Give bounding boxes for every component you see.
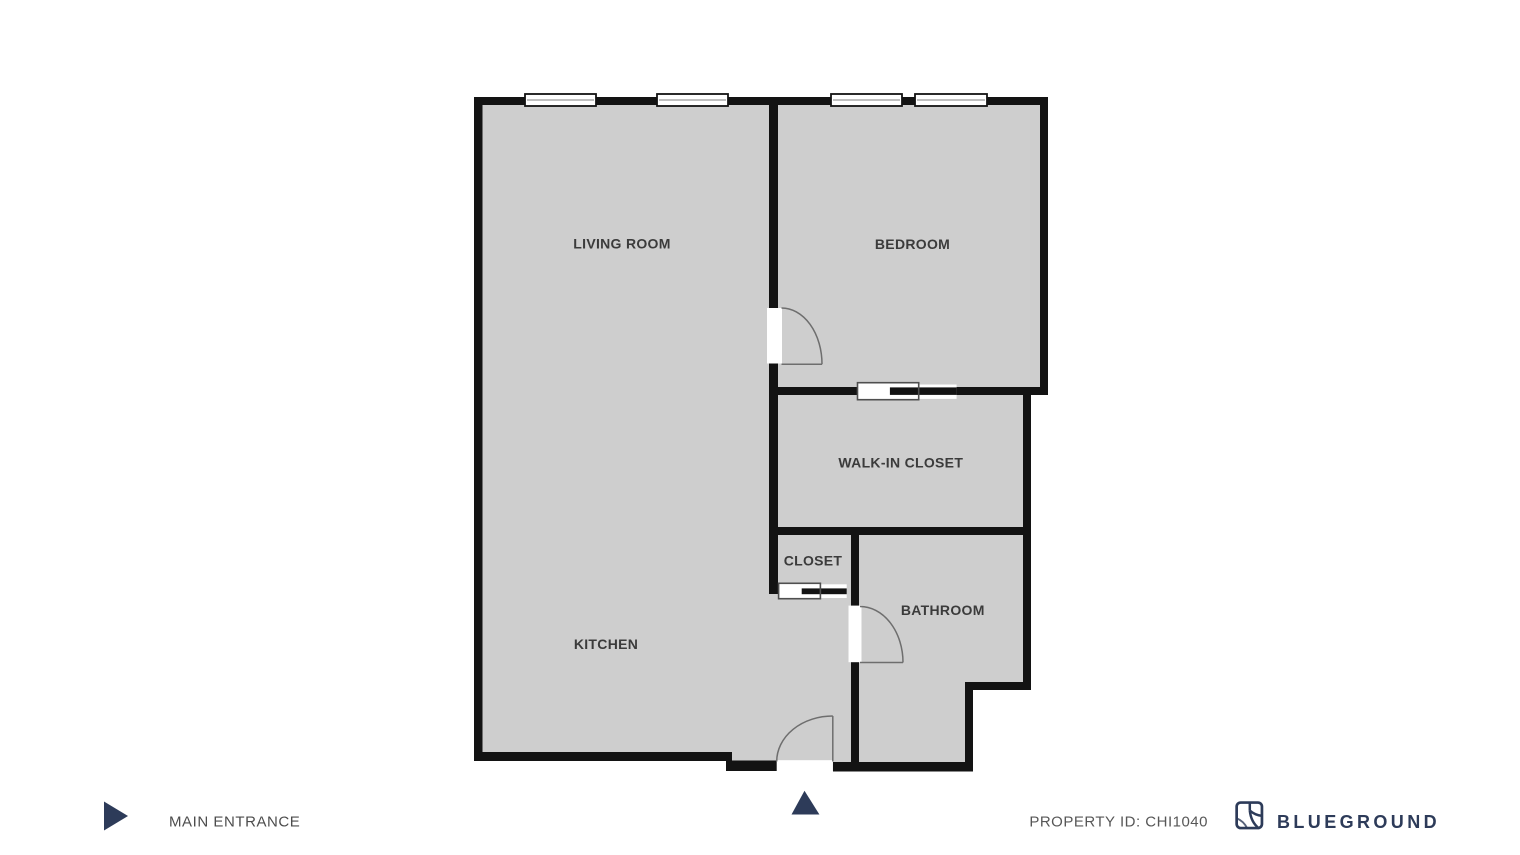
- svg-text:BLUEGROUND: BLUEGROUND: [1277, 812, 1440, 832]
- svg-text:PROPERTY ID: CHI1040: PROPERTY ID: CHI1040: [1029, 814, 1208, 831]
- svg-text:KITCHEN: KITCHEN: [574, 636, 638, 652]
- svg-text:MAIN ENTRANCE: MAIN ENTRANCE: [169, 814, 300, 831]
- svg-text:CLOSET: CLOSET: [784, 553, 843, 569]
- svg-text:WALK-IN CLOSET: WALK-IN CLOSET: [838, 454, 963, 470]
- svg-text:BATHROOM: BATHROOM: [901, 602, 985, 618]
- svg-text:BEDROOM: BEDROOM: [875, 236, 950, 252]
- svg-text:LIVING ROOM: LIVING ROOM: [573, 236, 670, 252]
